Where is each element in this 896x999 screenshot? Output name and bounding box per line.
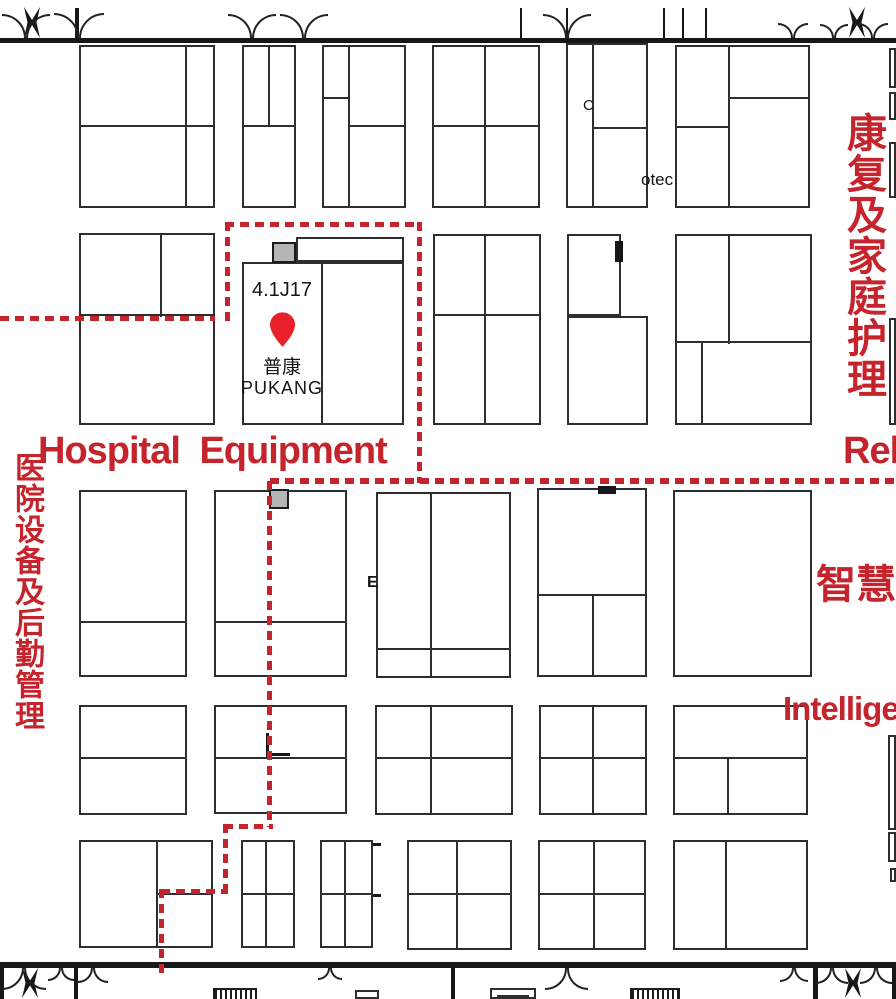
booth-number-label: 4.1J17 bbox=[242, 279, 322, 302]
booth-name-en: PUKANG bbox=[240, 378, 324, 399]
booth-name-cn: 普康 bbox=[242, 352, 322, 379]
booth-divider bbox=[242, 125, 296, 127]
booth-divider bbox=[320, 893, 373, 895]
booth-divider bbox=[160, 233, 162, 317]
booth-divider bbox=[484, 234, 486, 425]
booth-divider bbox=[730, 97, 810, 99]
booth-outline bbox=[673, 840, 808, 950]
booth-divider bbox=[538, 893, 646, 895]
booth-outline bbox=[567, 234, 621, 316]
booth-divider bbox=[592, 43, 594, 208]
door-arc bbox=[860, 968, 876, 984]
booth-outline bbox=[407, 840, 512, 950]
door-arc bbox=[93, 968, 108, 983]
annotation-otec: otec bbox=[641, 170, 673, 190]
booth-outline bbox=[890, 868, 896, 882]
door-arc bbox=[48, 968, 61, 981]
zone-label-hospital-logistics-vertical: 医院设备及后勤管理 bbox=[4, 452, 48, 731]
door-arc bbox=[79, 13, 104, 38]
booth-divider bbox=[185, 45, 187, 208]
zone-label-rehab-home-care-vertical: 康复及家庭护理 bbox=[834, 112, 892, 399]
booth-outline bbox=[538, 840, 646, 950]
booth-divider bbox=[430, 705, 432, 815]
door-jamb bbox=[663, 8, 665, 38]
booth-divider bbox=[79, 125, 215, 127]
zone-label-intelligent-partial: Intellige bbox=[783, 690, 896, 728]
booth-divider bbox=[593, 840, 595, 950]
zone-boundary-dashed-line bbox=[161, 889, 228, 894]
door-arc bbox=[780, 968, 794, 982]
booth-divider bbox=[322, 97, 349, 99]
booth-outline bbox=[566, 43, 648, 208]
annotation-c-mark: C bbox=[583, 97, 594, 114]
stairs-hatch bbox=[630, 988, 680, 999]
door-arc bbox=[61, 968, 74, 981]
booth-divider bbox=[675, 126, 729, 128]
booth-marker bbox=[598, 486, 616, 494]
booth-divider bbox=[432, 125, 540, 127]
door-arc bbox=[820, 24, 834, 38]
booth-marker bbox=[615, 241, 623, 262]
booth-outline bbox=[888, 735, 896, 830]
door-arc bbox=[567, 14, 591, 38]
booth-divider bbox=[241, 893, 295, 895]
door-arc bbox=[876, 968, 892, 984]
zone-boundary-dashed-line bbox=[223, 824, 228, 894]
booth-divider bbox=[375, 757, 513, 759]
door-arc bbox=[873, 23, 888, 38]
zone-boundary-dashed-line bbox=[0, 316, 215, 321]
annotation-e-mark: E bbox=[367, 574, 378, 592]
booth-outline bbox=[79, 233, 215, 425]
zone-boundary-dashed-line bbox=[225, 222, 230, 321]
zone-boundary-dashed-line bbox=[267, 481, 272, 827]
wall bbox=[0, 38, 896, 43]
booth-divider bbox=[593, 127, 648, 129]
door-arc bbox=[832, 968, 848, 984]
booth-divider bbox=[349, 125, 406, 127]
zone-boundary-dashed-line bbox=[270, 478, 896, 484]
booth-divider bbox=[673, 757, 808, 759]
zone-boundary-dashed-line bbox=[417, 222, 422, 483]
booth-divider bbox=[701, 343, 703, 425]
door-arc bbox=[2, 968, 24, 990]
booth-outline bbox=[889, 48, 896, 88]
wall-post bbox=[892, 968, 896, 999]
zone-boundary-dashed-line bbox=[224, 824, 273, 829]
booth-divider bbox=[592, 596, 594, 677]
wall bbox=[0, 962, 896, 968]
door-arc bbox=[228, 14, 252, 38]
booth-divider bbox=[675, 341, 812, 343]
booth-outline bbox=[214, 705, 347, 814]
door-arc bbox=[543, 14, 567, 38]
booth-divider bbox=[433, 314, 541, 316]
booth-divider bbox=[79, 621, 187, 623]
floor-symbol bbox=[355, 990, 379, 999]
wall-post bbox=[451, 968, 455, 999]
booth-divider bbox=[727, 759, 729, 815]
door-arc bbox=[252, 14, 276, 38]
zone-label-smart-health-partial: 智慧健 bbox=[816, 552, 896, 610]
door-arc bbox=[816, 968, 832, 984]
floor-symbol bbox=[497, 995, 529, 999]
booth-divider bbox=[214, 757, 347, 759]
door-arc bbox=[304, 14, 328, 38]
booth-outline bbox=[79, 490, 187, 677]
door-arc bbox=[78, 968, 93, 983]
location-pin-icon[interactable] bbox=[270, 312, 295, 347]
exhibition-floor-plan: 4.1J17 普康 PUKANG Hospital Equipment Reh … bbox=[0, 0, 896, 999]
booth-divider bbox=[79, 757, 187, 759]
door-arc bbox=[318, 968, 330, 980]
booth-outline bbox=[433, 234, 541, 425]
booth-outline bbox=[675, 234, 812, 425]
door-jamb bbox=[520, 8, 522, 38]
booth-divider bbox=[214, 621, 347, 623]
booth-outline bbox=[888, 832, 896, 862]
booth-divider bbox=[268, 45, 270, 127]
zone-boundary-dashed-line bbox=[159, 889, 164, 974]
booth-outline bbox=[567, 316, 648, 425]
booth-divider bbox=[456, 840, 458, 950]
booth-marker-square bbox=[272, 242, 296, 263]
booth-marker-square bbox=[269, 489, 289, 509]
booth-outline bbox=[375, 705, 513, 815]
booth-divider bbox=[430, 492, 432, 678]
door-arc bbox=[834, 24, 848, 38]
booth-divider bbox=[592, 705, 594, 815]
booth-marker bbox=[373, 843, 381, 846]
booth-outline bbox=[376, 492, 511, 678]
booth-outline bbox=[214, 490, 347, 677]
door-arc bbox=[567, 968, 589, 990]
door-arc bbox=[778, 23, 793, 38]
booth-divider bbox=[376, 648, 511, 650]
door-jamb bbox=[682, 8, 684, 38]
stairs-hatch bbox=[213, 988, 257, 999]
booth-divider bbox=[407, 893, 512, 895]
door-jamb bbox=[705, 8, 707, 38]
door-arc bbox=[793, 23, 808, 38]
door-arc bbox=[858, 23, 873, 38]
door-arc bbox=[330, 968, 342, 980]
door-arc bbox=[2, 14, 26, 38]
door-arc bbox=[545, 968, 567, 990]
booth-marker bbox=[373, 894, 381, 897]
booth-outline bbox=[296, 237, 404, 262]
booth-divider bbox=[539, 757, 647, 759]
zone-boundary-dashed-line bbox=[225, 222, 422, 227]
door-arc bbox=[794, 968, 808, 982]
door-arc bbox=[280, 14, 304, 38]
booth-divider bbox=[725, 840, 727, 950]
booth-divider bbox=[728, 234, 730, 344]
booth-outline bbox=[673, 490, 812, 677]
zone-label-hospital-equipment: Hospital Equipment bbox=[38, 430, 387, 473]
booth-outline bbox=[79, 705, 187, 815]
zone-label-rehabilitation-partial: Reh bbox=[843, 430, 896, 473]
